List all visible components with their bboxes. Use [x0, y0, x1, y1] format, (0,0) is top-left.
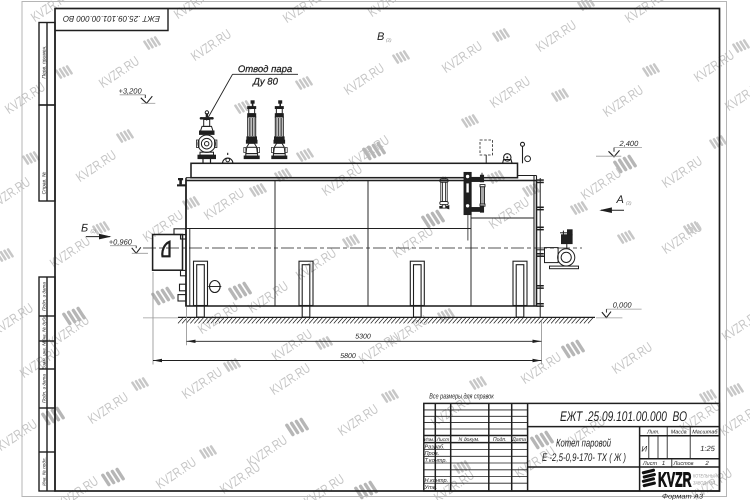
- svg-text:Подп.: Подп.: [493, 437, 507, 443]
- svg-text:2: 2: [704, 460, 709, 467]
- svg-text:Н.контр.: Н.контр.: [425, 478, 449, 484]
- svg-text:Подп. и дата: Подп. и дата: [42, 282, 47, 311]
- svg-text:А: А: [616, 194, 624, 206]
- svg-text:Формат А3: Формат А3: [662, 493, 703, 500]
- svg-text:Лист: Лист: [642, 461, 658, 467]
- svg-text:Лит.: Лит.: [646, 429, 660, 435]
- svg-text:(2): (2): [91, 229, 97, 234]
- svg-text:KVZR: KVZR: [658, 469, 692, 492]
- svg-text:Пров.: Пров.: [425, 451, 440, 457]
- svg-text:5300: 5300: [355, 334, 371, 341]
- svg-text:Отвод пара: Отвод пара: [238, 64, 292, 75]
- svg-text:Инв. № подл.: Инв. № подл.: [42, 457, 47, 486]
- svg-text:Котел паровой: Котел паровой: [556, 438, 611, 450]
- svg-text:5800: 5800: [340, 353, 356, 360]
- svg-text:Б: Б: [81, 223, 88, 235]
- svg-text:1:25: 1:25: [700, 444, 715, 453]
- svg-text:ЕЖТ .25.09.101.00.000 ВО: ЕЖТ .25.09.101.00.000 ВО: [560, 408, 687, 424]
- svg-text:Листов: Листов: [672, 461, 693, 467]
- svg-text:(2): (2): [626, 201, 632, 206]
- svg-text:Утв.: Утв.: [424, 485, 438, 491]
- svg-text:Справ. №: Справ. №: [42, 171, 48, 194]
- svg-text:1: 1: [662, 460, 665, 467]
- svg-text:Разраб.: Разраб.: [425, 443, 445, 450]
- svg-text:Е -2,5-0,9-170- ТХ ( Ж ): Е -2,5-0,9-170- ТХ ( Ж ): [542, 452, 626, 464]
- svg-text:Все размеры для справок: Все размеры для справок: [429, 392, 494, 401]
- svg-text:В: В: [377, 31, 384, 43]
- svg-text:И: И: [641, 445, 647, 454]
- svg-text:ЗАВОД РЭП: ЗАВОД РЭП: [693, 481, 715, 487]
- svg-text:N докум.: N докум.: [459, 437, 480, 443]
- svg-text:Т.контр.: Т.контр.: [425, 458, 448, 464]
- svg-text:Лист: Лист: [436, 437, 449, 443]
- svg-text:Дата: Дата: [511, 437, 526, 443]
- svg-text:ЕЖТ .25.09.101.00.000 ВО: ЕЖТ .25.09.101.00.000 ВО: [62, 14, 160, 23]
- svg-text:Перв. примен.: Перв. примен.: [42, 45, 48, 78]
- svg-text:2,400: 2,400: [619, 139, 640, 148]
- svg-text:0,000: 0,000: [613, 300, 633, 309]
- svg-text:КОТЕЛЬНЫЙ: КОТЕЛЬНЫЙ: [693, 473, 717, 480]
- svg-text:Масштаб: Масштаб: [692, 429, 718, 435]
- svg-text:Подп. и дата: Подп. и дата: [42, 374, 47, 403]
- svg-text:+3,200: +3,200: [119, 86, 143, 95]
- svg-text:+0,960: +0,960: [109, 237, 133, 246]
- svg-text:Инв. № дубл.: Инв. № дубл.: [42, 314, 47, 342]
- svg-text:Ду 80: Ду 80: [252, 76, 278, 87]
- svg-text:Изм.: Изм.: [424, 437, 434, 443]
- svg-text:Взам. инв. №: Взам. инв. №: [42, 341, 47, 369]
- svg-text:(2): (2): [386, 38, 392, 43]
- svg-text:Масса: Масса: [671, 429, 687, 435]
